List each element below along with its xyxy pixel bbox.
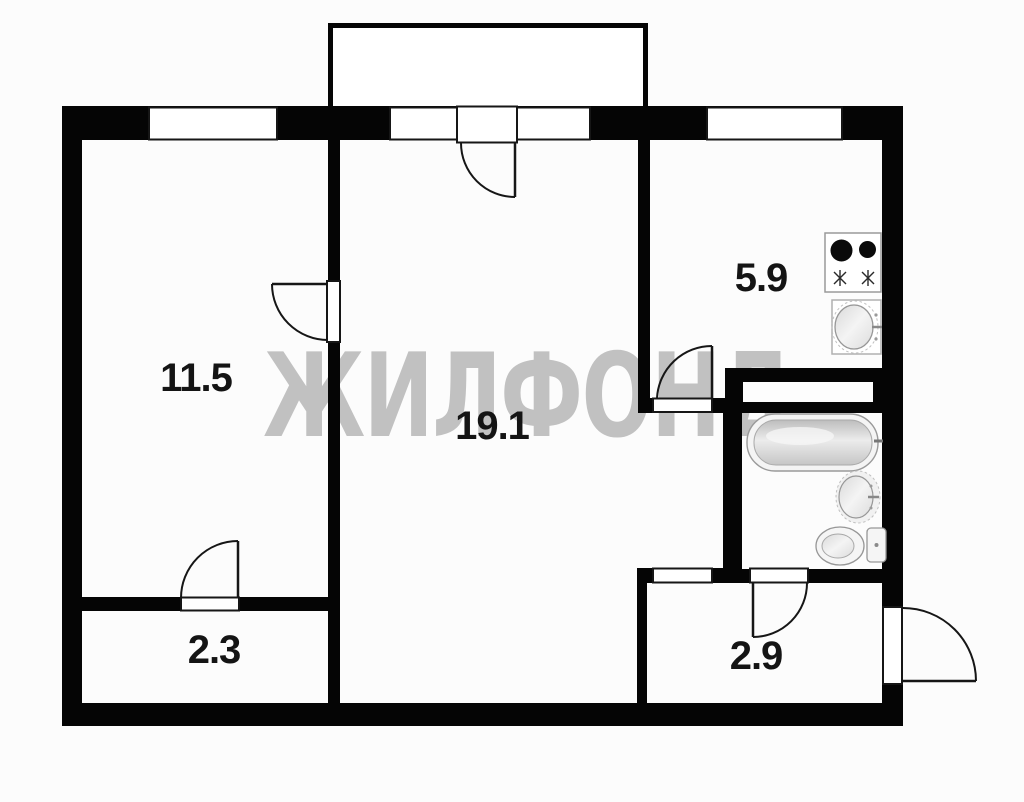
opening-hallway-pass xyxy=(653,569,712,583)
window-room-left xyxy=(149,108,277,140)
window-balcony-left xyxy=(390,108,457,140)
washbasin-tap-dot-bottom xyxy=(870,507,873,510)
window-balcony-right xyxy=(517,108,590,140)
bathroom-door xyxy=(753,583,807,637)
floor-plan: ЖИЛФОНД xyxy=(0,0,1024,802)
kitchen-door xyxy=(657,346,712,398)
opening-storage-door xyxy=(181,598,239,611)
wall-room-living-upper xyxy=(328,140,340,281)
balcony xyxy=(331,26,646,107)
wall-kitchen-door-left xyxy=(638,398,653,413)
opening-kitchen-door xyxy=(653,399,712,413)
kitchen-sink-basin xyxy=(835,305,873,349)
toilet-icon xyxy=(816,527,886,565)
wall-room-living-lower xyxy=(328,342,340,703)
wall-hall-top-left xyxy=(637,568,653,583)
wall-exterior-left xyxy=(62,106,82,726)
wall-kitchen-door-right xyxy=(712,398,725,413)
wall-storage-right xyxy=(239,597,328,611)
vent-duct-inner xyxy=(743,382,873,402)
opening-entry-door xyxy=(883,607,902,684)
stove-burner-large xyxy=(831,240,853,262)
washbasin-icon xyxy=(836,471,880,523)
wall-hallway-left xyxy=(637,583,647,703)
wall-bathroom-bottom-right xyxy=(808,569,883,583)
washbasin-tap-dot-top xyxy=(870,485,873,488)
wall-exterior-bottom xyxy=(62,703,903,726)
wall-hall-top-right xyxy=(712,568,742,583)
balcony-door-arc xyxy=(461,143,515,197)
kitchen-door-arc xyxy=(657,346,712,398)
washbasin-bowl xyxy=(839,476,873,518)
entry-door xyxy=(903,608,976,681)
window-kitchen xyxy=(707,108,842,140)
opening-balcony-door xyxy=(457,107,517,143)
kitchen-sink-tap-dot-top xyxy=(874,313,877,316)
bathroom-door-arc xyxy=(753,583,807,637)
balcony-door xyxy=(461,143,515,197)
room-door xyxy=(272,284,328,340)
storage-door-arc xyxy=(181,541,238,598)
storage-door xyxy=(181,541,238,598)
toilet-bowl-inner xyxy=(822,534,854,558)
kitchen-sink-tap-dot-bottom xyxy=(874,337,877,340)
room-door-arc xyxy=(272,284,328,340)
wall-storage-left xyxy=(82,597,181,611)
bathtub-highlight xyxy=(766,427,834,445)
bathtub-icon xyxy=(747,414,883,471)
label-room-left: 11.5 xyxy=(160,358,232,398)
wall-bathroom-left xyxy=(723,413,742,583)
opening-room-door xyxy=(327,281,340,342)
entry-door-arc xyxy=(903,608,976,681)
floor-plan-drawing xyxy=(0,0,1024,802)
toilet-cistern-button xyxy=(875,543,879,547)
stove-burner-medium xyxy=(859,241,876,258)
label-living-room: 19.1 xyxy=(455,406,529,446)
opening-bathroom-door xyxy=(750,569,808,583)
wall-bathroom-bottom-left xyxy=(738,569,750,583)
stove-icon xyxy=(825,233,881,292)
kitchen-sink-icon xyxy=(832,300,882,354)
label-kitchen: 5.9 xyxy=(735,258,788,298)
label-hallway: 2.9 xyxy=(730,636,783,676)
wall-living-kitchen xyxy=(638,140,650,413)
balcony-wall xyxy=(331,26,646,107)
label-storage: 2.3 xyxy=(188,630,241,670)
